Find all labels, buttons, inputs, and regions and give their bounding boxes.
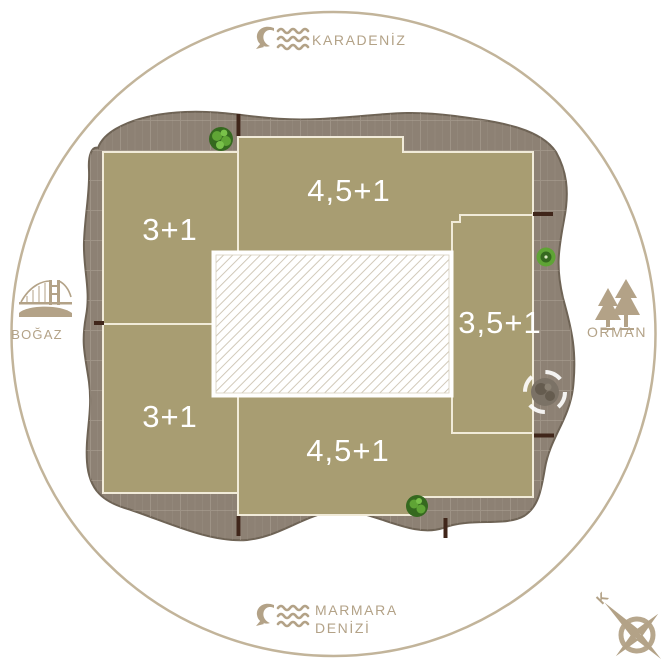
tree-top-icon (525, 372, 565, 412)
landmark-east-label: ORMAN (587, 324, 647, 340)
landmark-south-label-line2: DENİZİ (315, 619, 371, 636)
unit-upper-left-label: 3+1 (142, 212, 198, 247)
central-court (213, 252, 452, 396)
compass-rose-icon: K (583, 581, 667, 667)
landmark-east: ORMAN (587, 279, 647, 340)
site-plan-canvas: KARADENİZ MARMARA DENİZİ BOĞAZ (0, 0, 667, 667)
landmark-west-label: BOĞAZ (11, 327, 63, 342)
sea-waves-icon (256, 27, 308, 49)
unit-top-label: 4,5+1 (307, 173, 390, 208)
site-plan-page: KARADENİZ MARMARA DENİZİ BOĞAZ (0, 0, 667, 667)
landmark-west: BOĞAZ (11, 280, 72, 342)
forest-icon (595, 279, 640, 330)
bridge-icon (19, 280, 72, 317)
landmark-north-label: KARADENİZ (312, 31, 407, 48)
landmark-south-label-line1: MARMARA (315, 602, 398, 618)
landmark-south: MARMARA DENİZİ (256, 602, 398, 636)
bush-icon (406, 495, 428, 517)
unit-bottom-label: 4,5+1 (306, 433, 389, 468)
unit-right-label: 3,5+1 (458, 305, 541, 340)
landmark-north: KARADENİZ (256, 27, 407, 49)
sea-waves-icon (256, 604, 308, 626)
compass-north-label: K (593, 589, 612, 607)
bush-icon (537, 248, 556, 267)
bush-icon (209, 127, 233, 151)
unit-lower-left-label: 3+1 (142, 399, 198, 434)
